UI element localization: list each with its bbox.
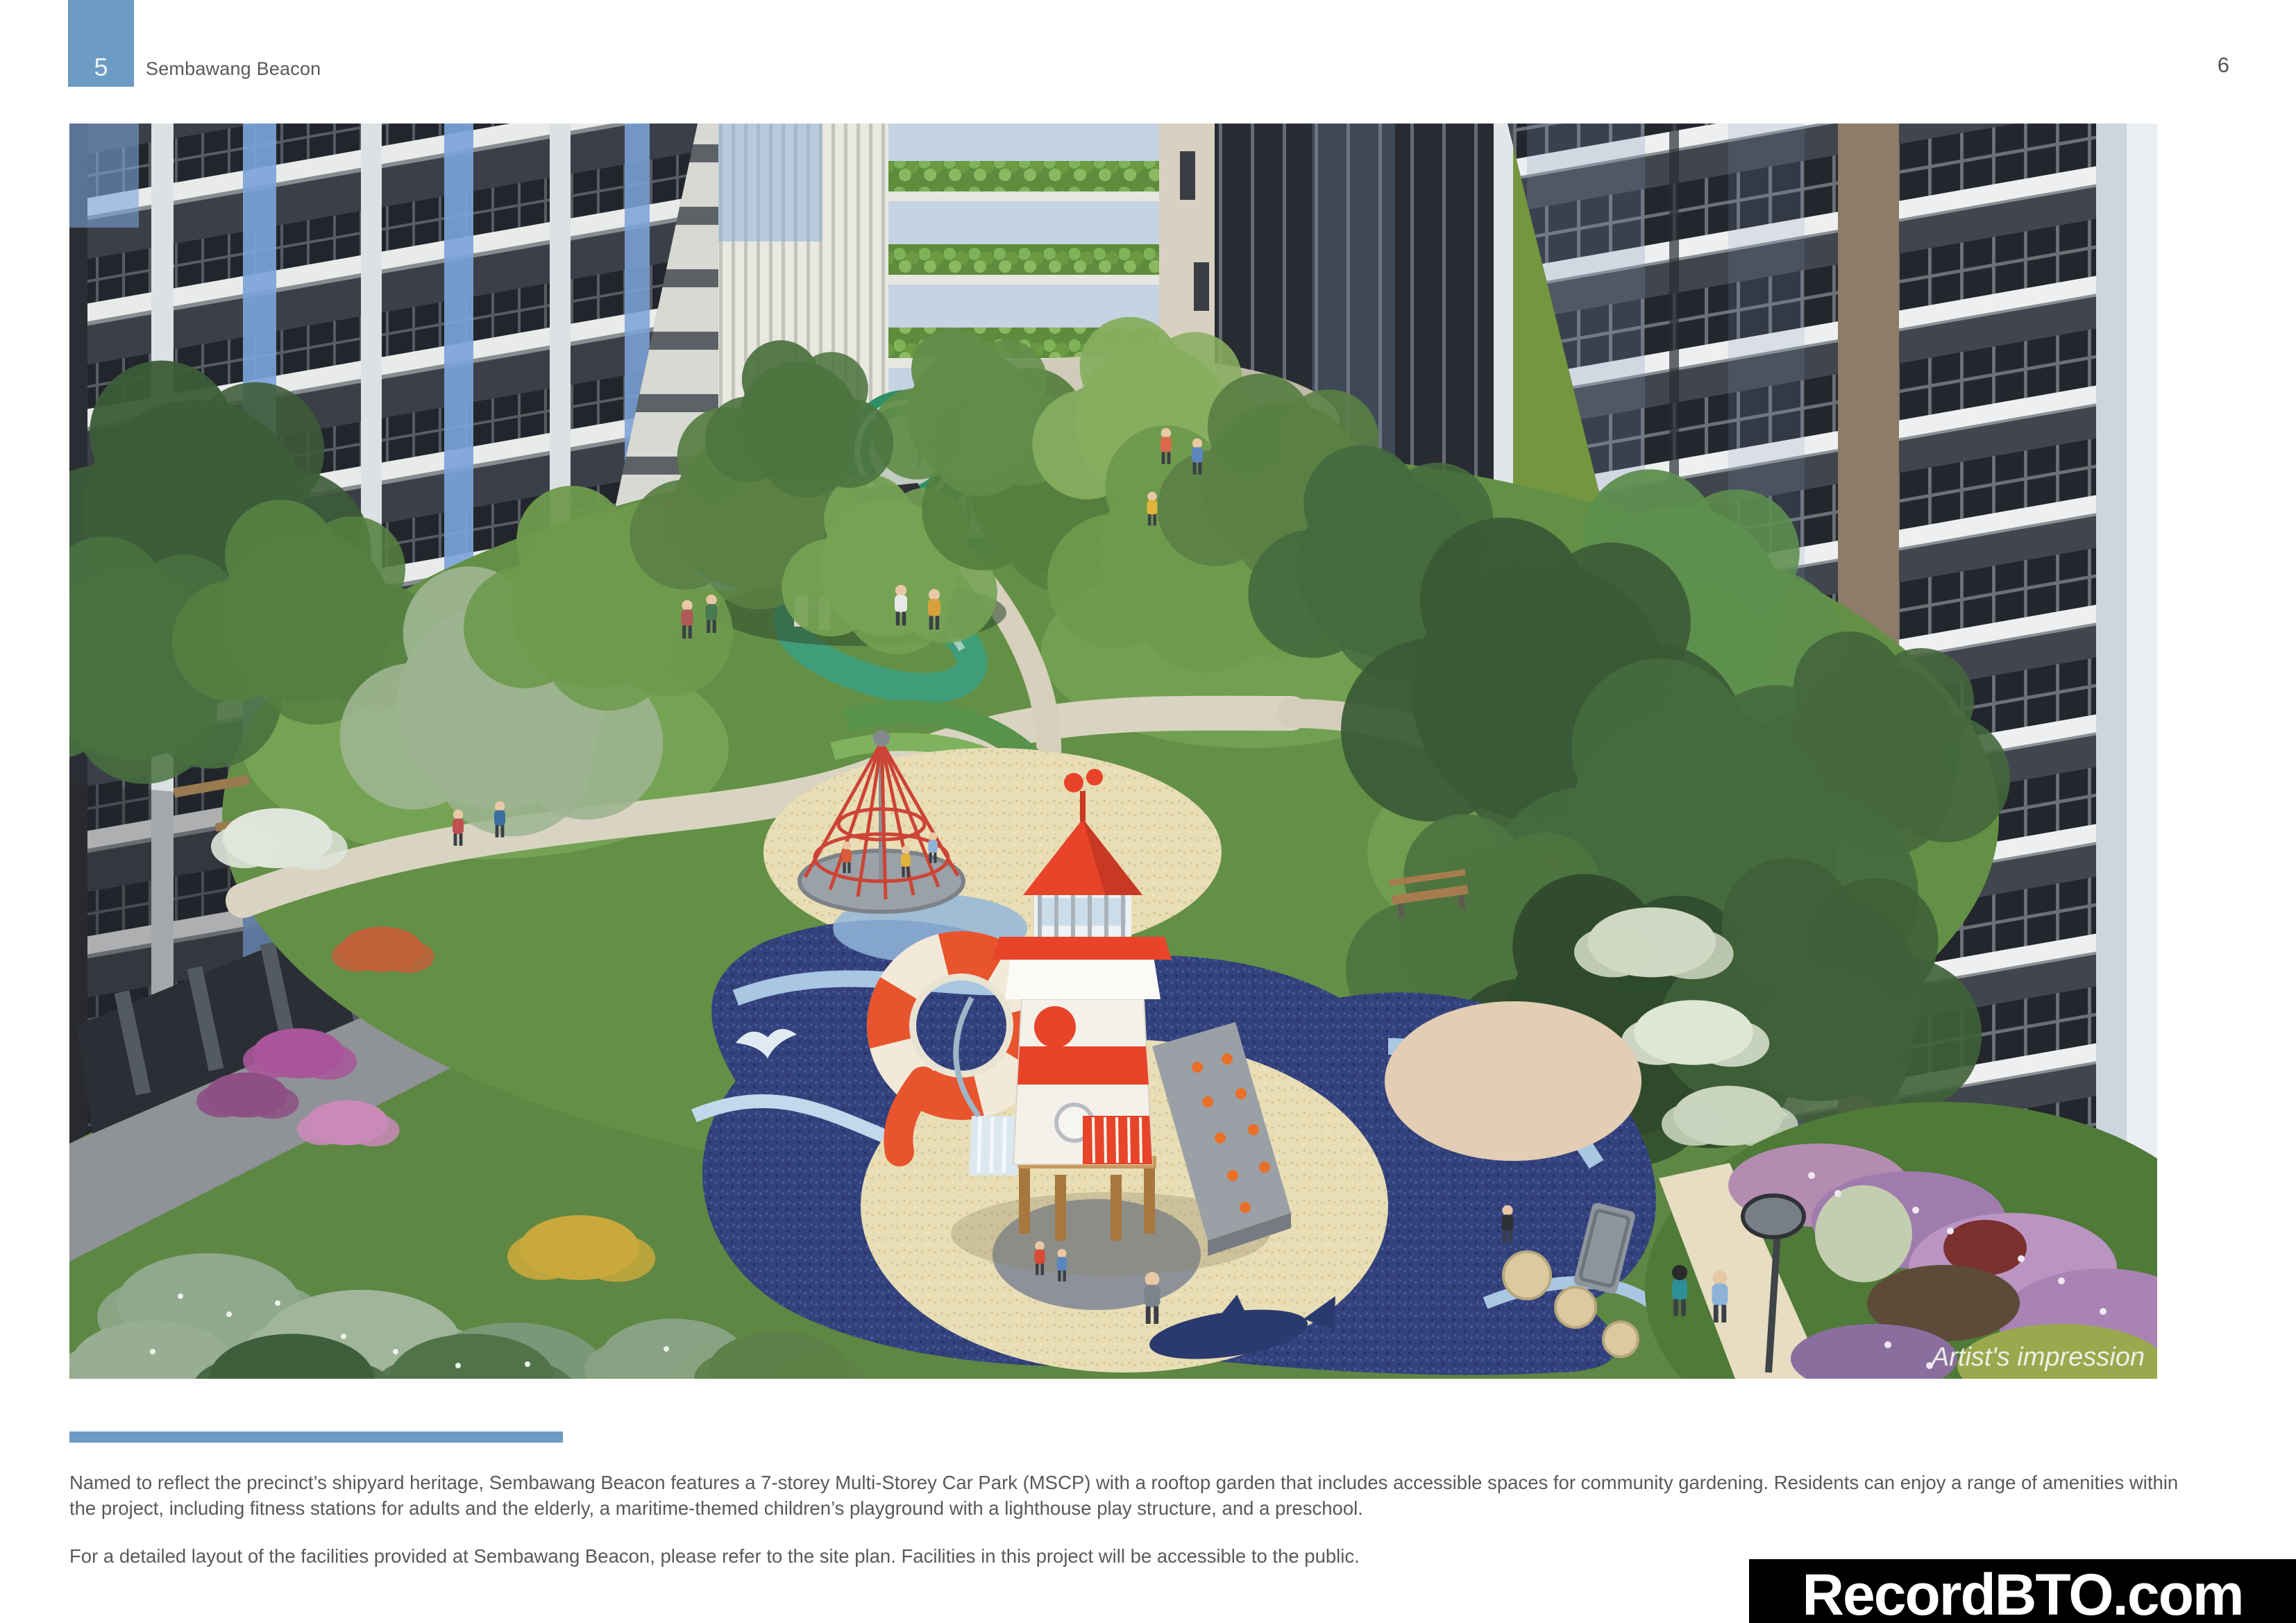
- chapter-number-box: 5: [68, 0, 134, 87]
- page-number: 6: [2218, 53, 2229, 78]
- courtyard-rendering-svg: Artist's impression: [69, 124, 2157, 1379]
- section-divider-bar: [69, 1431, 563, 1443]
- description-paragraph: Named to reflect the precinct’s shipyard…: [69, 1470, 2191, 1521]
- watermark-text: RecordBTO.com: [1802, 1566, 2243, 1623]
- chapter-number: 5: [94, 55, 108, 80]
- courtyard-rendering: Artist's impression: [69, 124, 2157, 1379]
- page-title: Sembawang Beacon: [146, 58, 321, 80]
- image-caption: Artist's impression: [1930, 1343, 2145, 1372]
- brochure-page: 5 Sembawang Beacon 6: [0, 0, 2296, 1623]
- watermark-banner: RecordBTO.com: [1749, 1559, 2296, 1623]
